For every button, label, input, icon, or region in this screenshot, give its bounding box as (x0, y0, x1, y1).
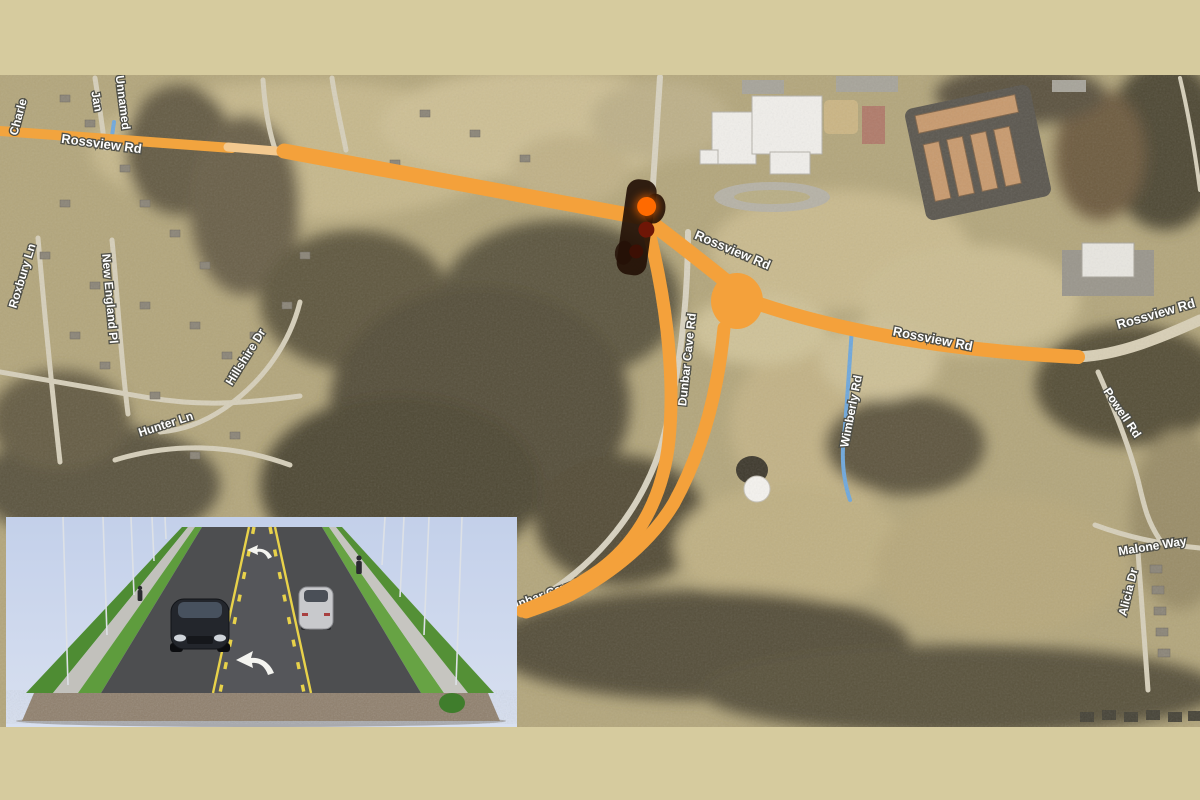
inset-svg (6, 517, 517, 727)
bush (439, 693, 465, 713)
pedestrian-right (356, 555, 362, 574)
dirt-texture (22, 693, 500, 721)
node-marker-dot (711, 273, 763, 329)
slide: Dunbar Cave Rd Dunbar Cave Rd (0, 0, 1200, 800)
road-rendering-inset (6, 517, 517, 727)
pedestrian-left (138, 586, 143, 601)
silver-car (299, 587, 333, 630)
dark-car (170, 599, 230, 652)
